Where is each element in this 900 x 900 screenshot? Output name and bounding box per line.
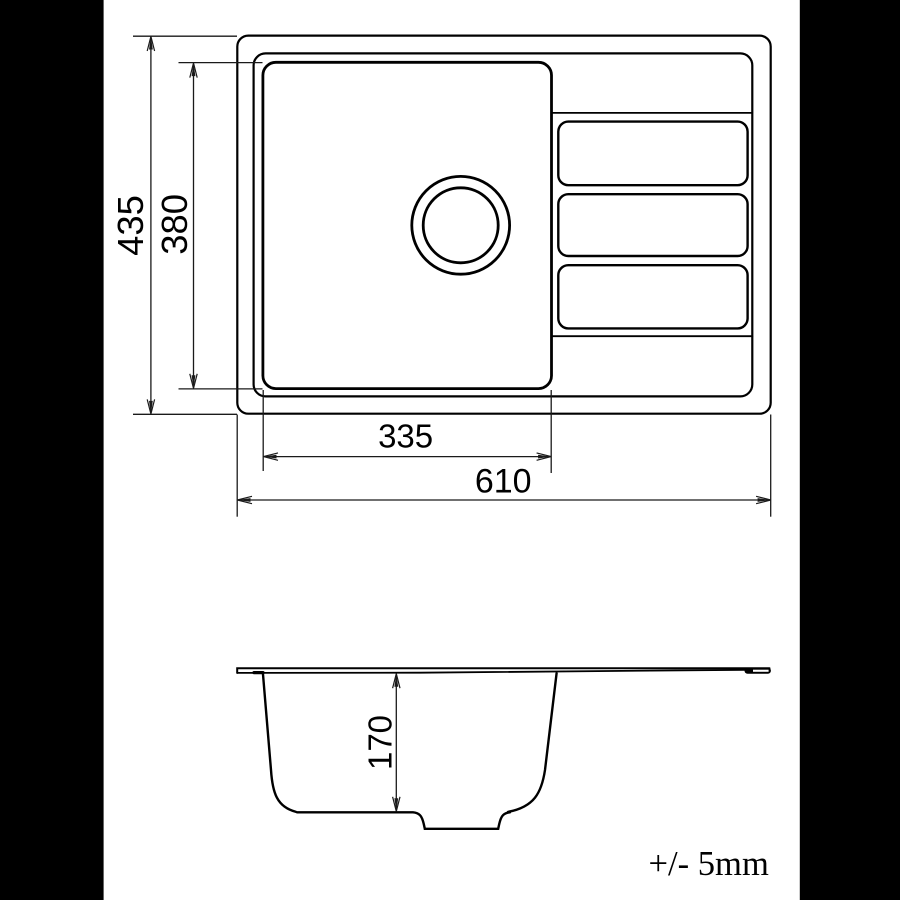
svg-text:610: 610 xyxy=(475,462,532,500)
svg-text:170: 170 xyxy=(361,715,398,770)
svg-text:380: 380 xyxy=(154,194,195,255)
svg-text:435: 435 xyxy=(110,195,151,256)
svg-text:335: 335 xyxy=(378,418,433,455)
svg-text:+/- 5mm: +/- 5mm xyxy=(649,845,769,883)
